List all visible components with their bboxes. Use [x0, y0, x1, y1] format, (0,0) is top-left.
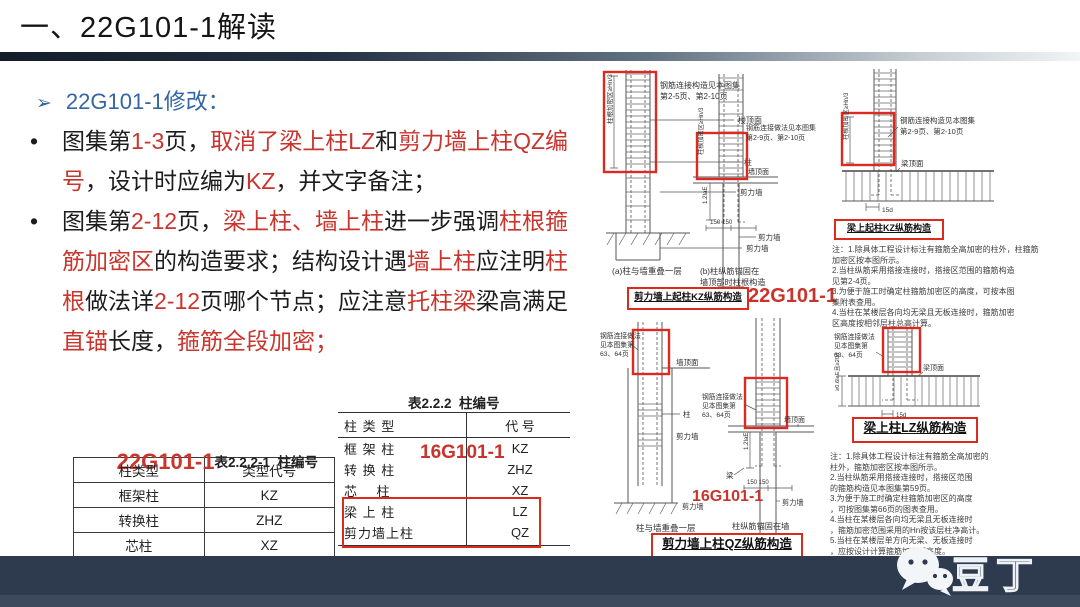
offset-dim: 150 150 — [710, 219, 733, 226]
text-segment: 的构造要求；结构设计遇 — [154, 248, 407, 274]
text-segment: 直锚 — [62, 328, 108, 354]
text-segment: 取消了梁上柱LZ — [210, 128, 375, 154]
figure-caption-kz-wall: 剪力墙上起柱KZ纵筋构造 — [627, 287, 749, 310]
note-line: 集附表查用。 — [832, 298, 1042, 309]
density-zone-tag: 柱根加密区≥Hn/3 — [605, 74, 614, 124]
figure-notes-22g: 注：1.除具体工程设计标注有箍筋全高加密的柱外，柱箍筋加密区按本图所示。2.当柱… — [832, 245, 1042, 329]
title-underline-bar — [0, 52, 1080, 61]
text-segment: 梁上柱、墙上柱 — [223, 208, 384, 234]
subfigure-caption: 柱纵筋锚固在墙 — [732, 521, 789, 531]
figure-kz-on-beam: 柱根加密区≥Hn/3 钢筋连接构造见本图集 第2-9页、第2-10页 梁顶面 1… — [838, 65, 998, 215]
bullet-1-text: 图集第1-3页，取消了梁上柱LZ和剪力墙上柱QZ编号，设计时应编为KZ，并文字备… — [62, 128, 568, 194]
code-16g101: 16G101-1 — [692, 488, 763, 506]
anchorage-dim: 1.2laE — [702, 186, 709, 204]
text-segment: 页， — [177, 208, 223, 234]
connection-note: 见本图集第 — [834, 341, 868, 350]
table-22g101: 22G101-1表2.2.2-1 柱编号 柱类型 类型代号 框架柱KZ 转换柱Z… — [73, 431, 335, 558]
connection-note: 钢筋连接做法 — [600, 331, 641, 340]
code-22g101: 22G101-1 — [748, 285, 837, 308]
text-segment: 梁高满足 — [476, 288, 568, 314]
dot-bullet-icon: • — [30, 201, 38, 241]
beam-label: 梁 — [726, 471, 734, 480]
subfigure-caption: (b)柱纵筋锚固在 — [700, 266, 759, 276]
text-segment: 图集第 — [62, 208, 131, 234]
table-16g101-caption: 表2.2.2 柱编号 — [336, 392, 572, 412]
table-header-row: 柱 类 型 代 号 — [338, 413, 570, 438]
anchorage-dim: 1.2laE — [743, 432, 750, 450]
note-line: ，箍筋加密范围采用的Hn按该层柱净高计。 — [830, 526, 1030, 537]
text-segment: 长度， — [108, 328, 177, 354]
table-16g101-code: 16G101-1 — [420, 442, 505, 464]
bullet-item-1: •图集第1-3页，取消了梁上柱LZ和剪力墙上柱QZ编号，设计时应编为KZ，并文字… — [28, 121, 580, 201]
highlight-box — [883, 328, 920, 372]
note-line: 注：1.除具体工程设计标注有箍筋全高加密的 — [830, 452, 1030, 463]
note-line: 2.当柱纵筋采用搭接连接时，搭接区范围的箍筋构造 — [832, 266, 1042, 277]
connection-note: 见本图集第 — [600, 340, 634, 349]
text-segment: KZ — [246, 168, 275, 194]
connection-note: 63、64页 — [702, 411, 731, 419]
page-title: 一、22G101-1解读 — [20, 8, 277, 48]
shear-wall-label: 剪力墙 — [676, 431, 699, 441]
text-segment: 托柱梁 — [407, 288, 476, 314]
note-line: 见第2-4页。 — [832, 277, 1042, 288]
dot-bullet-icon: • — [30, 121, 38, 161]
text-segment: 进一步强调 — [384, 208, 499, 234]
connection-note: 63、64页 — [600, 350, 629, 358]
shear-wall-label: 剪力墙 — [740, 187, 763, 197]
note-line: ，可按图集第66页的图表查用。 — [830, 505, 1030, 516]
brand-text: 豆丁施工 — [952, 545, 1080, 607]
connection-note: 钢筋连接构造见本图集 — [660, 80, 740, 90]
figure-caption-kz-beam: 梁上起柱KZ纵筋构造 — [834, 219, 944, 240]
bullet-item-2: •图集第2-12页，梁上柱、墙上柱进一步强调柱根箍筋加密区的构造要求；结构设计遇… — [28, 201, 580, 361]
figure-kz-on-wall: 钢筋连接构造见本图集 第2-5页、第2-10页 柱根加密区≥Hn/3 楼顶面 柱… — [598, 62, 838, 312]
subfigure-caption: (a)柱与墙重叠一层 — [612, 266, 682, 276]
slide: 一、22G101-1解读 ➢22G101-1修改： •图集第1-3页，取消了梁上… — [0, 0, 1080, 607]
text-segment: ，并文字备注； — [275, 168, 436, 194]
figure-caption-lz-beam: 梁上柱LZ纵筋构造 — [852, 417, 978, 443]
hook-dim: 15d — [882, 207, 893, 214]
intro-heading-text: 22G101-1修改： — [66, 89, 230, 114]
note-line: 3.为便于施工时确定柱箍筋加密区的高度，可按本图 — [832, 287, 1042, 298]
connection-note: 第2-9页、第2-10页 — [746, 133, 805, 142]
connection-note: 第2-9页、第2-10页 — [900, 126, 964, 136]
column-label: 柱 — [683, 409, 691, 419]
note-line: 4.当柱在某楼层各向均无梁且无板连接时，箍筋加密 — [832, 308, 1042, 319]
floor-top-label: 楼顶面 — [738, 115, 762, 125]
table-22g101-title: 22G101-1表2.2.2-1 柱编号 — [73, 431, 335, 456]
shear-wall-label: 剪力墙 — [758, 232, 781, 242]
note-line: 柱外，箍筋加密区按本图所示。 — [830, 463, 1030, 474]
highlight-box — [342, 497, 541, 548]
highlight-box — [745, 378, 787, 428]
note-line: 注：1.除具体工程设计标注有箍筋全高加密的柱外，柱箍筋 — [832, 245, 1042, 256]
text-segment: 2-12 — [154, 288, 200, 314]
connection-note: 钢筋连接构造见本图集 — [900, 115, 975, 125]
connection-note: 钢筋连接做法见本图集 — [746, 123, 816, 132]
text-segment: 做法详 — [85, 288, 154, 314]
anchorage-dim: ≥0.6laE且≥20d — [834, 353, 841, 391]
text-segment: ，设计时应编为 — [85, 168, 246, 194]
wechat-bubbles-icon — [893, 541, 955, 597]
connection-note: 见本图集第 — [702, 401, 736, 410]
text-segment: 2-12 — [131, 208, 177, 234]
shear-wall-label: 剪力墙 — [746, 243, 769, 253]
text-segment: 应注明 — [476, 248, 545, 274]
table-row: 转换柱ZHZ — [74, 508, 335, 533]
arrow-bullet-icon: ➢ — [36, 93, 52, 114]
offset-dim: 150 150 — [747, 480, 769, 486]
density-zone-tag: 柱根加密区≥Hn/3 — [842, 92, 850, 140]
beam-top-label: 梁顶面 — [923, 363, 944, 372]
connection-note: 钢筋连接做法 — [702, 392, 743, 401]
note-line: 4.当柱在某楼层各向均无梁且无板连接时 — [830, 515, 1030, 526]
text-segment: 箍筋全段加密； — [177, 328, 338, 354]
wall-top-label: 墙顶面 — [784, 415, 805, 424]
figure-qz-on-wall: 钢筋连接做法 见本图集第 63、64页 墙顶面 柱 剪力墙 剪力墙 柱与墙重叠一… — [598, 318, 838, 556]
intro-heading: ➢22G101-1修改： — [36, 84, 230, 116]
beam-top-label: 梁顶面 — [901, 159, 924, 168]
table-row: 芯柱XZ — [74, 533, 335, 558]
text-segment: 墙上柱 — [407, 248, 476, 274]
text-segment: 页哪个节点；应注意 — [200, 288, 407, 314]
text-segment: 页， — [164, 128, 210, 154]
bullet-2-text: 图集第2-12页，梁上柱、墙上柱进一步强调柱根箍筋加密区的构造要求；结构设计遇墙… — [62, 208, 568, 354]
note-line: 加密区按本图所示。 — [832, 256, 1042, 267]
wall-top-label: 墙顶面 — [748, 167, 769, 176]
note-line: 3.为便于施工时确定柱箍筋加密区的高度 — [830, 494, 1030, 505]
note-line: 的箍筋构造见本图集第59页。 — [830, 484, 1030, 495]
text-segment: 1-3 — [131, 128, 164, 154]
connection-note: 第2-5页、第2-10页 — [660, 91, 728, 101]
note-line: 2.当柱纵筋采用搭接连接时，搭接区范围 — [830, 473, 1030, 484]
wall-top-label: 墙顶面 — [676, 357, 699, 367]
bullet-list: •图集第1-3页，取消了梁上柱LZ和剪力墙上柱QZ编号，设计时应编为KZ，并文字… — [28, 121, 580, 361]
connection-note: 钢筋连接做法 — [834, 332, 875, 341]
density-zone-tag: 柱根加密区≥Hn/3 — [697, 107, 705, 155]
subfigure-caption: 柱与墙重叠一层 — [636, 523, 696, 533]
text-segment: 图集第 — [62, 128, 131, 154]
text-segment: 和 — [375, 128, 398, 154]
shear-wall-label: 剪力墙 — [782, 498, 804, 507]
table-16g101: 表2.2.2 柱编号 柱 类 型 代 号 框 架 柱KZ 转 换 柱ZHZ 芯 … — [336, 392, 572, 550]
